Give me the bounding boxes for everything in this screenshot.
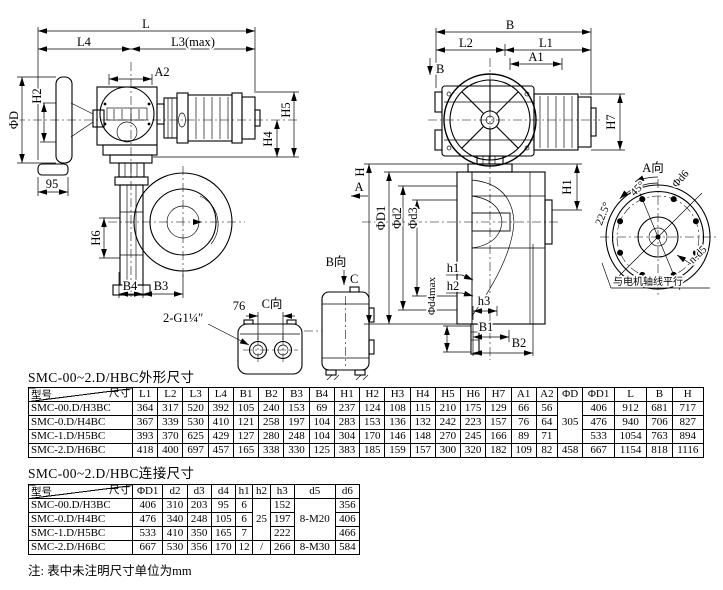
dim-cell: 305 bbox=[558, 402, 583, 444]
dim-cell: 356 bbox=[335, 499, 359, 513]
column-header: h3 bbox=[270, 485, 294, 499]
corner-header-cell: 型号 尺寸 bbox=[29, 388, 133, 402]
dim-cell: 157 bbox=[410, 444, 435, 458]
column-header: B bbox=[647, 388, 672, 402]
dim-cell: 706 bbox=[647, 416, 672, 430]
table-row: SMC-0.D/H4BC3673395304101212581971042831… bbox=[29, 416, 704, 430]
dim-cell: 406 bbox=[583, 402, 615, 416]
dim-cell: 105 bbox=[233, 402, 258, 416]
table-row: SMC-2.D/H6BC66753035617012/2668-M30584 bbox=[29, 541, 360, 555]
dim-cell: 125 bbox=[309, 444, 334, 458]
dim-cell: 64 bbox=[536, 416, 557, 430]
view-b-junction-box: B向 C bbox=[304, 254, 374, 380]
dim-cell: 108 bbox=[385, 402, 410, 416]
dim-cell: 406 bbox=[133, 499, 163, 513]
column-header: h1 bbox=[235, 485, 252, 499]
dim-cell: 109 bbox=[511, 444, 536, 458]
dim-cell: 25 bbox=[253, 499, 270, 541]
dim-cell: 157 bbox=[486, 416, 511, 430]
table2-title: SMC-00~2.D/HBC连接尺寸 bbox=[28, 462, 704, 482]
dim-cell: 159 bbox=[385, 444, 410, 458]
model-cell: SMC-1.D/H5BC bbox=[29, 527, 133, 541]
view-c-terminal-box: 76 C向 bbox=[233, 296, 302, 374]
dim-cell: 182 bbox=[486, 444, 511, 458]
header-row: 型号 尺寸 L1L2L3L4B1B2B3B4H1H2H3H4H5H6H7A1A2… bbox=[29, 388, 704, 402]
column-header: L1 bbox=[133, 388, 158, 402]
dim-label-b4: B4 bbox=[123, 279, 138, 293]
dim-cell: 197 bbox=[270, 513, 294, 527]
dim-cell: 356 bbox=[187, 541, 211, 555]
dim-label-phid: ΦD bbox=[7, 111, 21, 129]
dim-cell: 625 bbox=[183, 430, 208, 444]
dim-cell: 300 bbox=[435, 444, 460, 458]
dim-label-h6: H6 bbox=[89, 230, 103, 245]
corner-model-label: 型号 bbox=[31, 389, 52, 402]
dim-cell: 66 bbox=[511, 402, 536, 416]
dim-cell: 170 bbox=[360, 430, 385, 444]
dim-label-phid1: ΦD1 bbox=[374, 206, 388, 230]
dim-cell: 8-M30 bbox=[294, 541, 335, 555]
dim-cell: 584 bbox=[335, 541, 359, 555]
column-header: d5 bbox=[294, 485, 335, 499]
dim-cell: 266 bbox=[270, 541, 294, 555]
dim-cell: 270 bbox=[435, 430, 460, 444]
dim-label-l4: L4 bbox=[77, 35, 92, 49]
column-header: h2 bbox=[253, 485, 270, 499]
dim-cell: 258 bbox=[259, 416, 284, 430]
dim-cell: 222 bbox=[270, 527, 294, 541]
dim-label-l3max: L3(max) bbox=[171, 35, 215, 49]
view-a-direction-label: A bbox=[354, 180, 363, 194]
dim-cell: 818 bbox=[647, 444, 672, 458]
dim-cell: 418 bbox=[133, 444, 158, 458]
column-header: H6 bbox=[461, 388, 486, 402]
dim-label-l1: L1 bbox=[539, 36, 553, 50]
dim-cell: 429 bbox=[208, 430, 233, 444]
dim-cell: 248 bbox=[187, 513, 211, 527]
column-header: L3 bbox=[183, 388, 208, 402]
table-row: SMC-00.D/H3BC406310203956251528-M20356 bbox=[29, 499, 360, 513]
corner-size-label: 尺寸 bbox=[109, 484, 130, 497]
model-cell: SMC-1.D/H5BC bbox=[29, 430, 133, 444]
dim-cell: 340 bbox=[163, 513, 187, 527]
dim-cell: 121 bbox=[233, 416, 258, 430]
column-header: H1 bbox=[334, 388, 359, 402]
dim-label-b3: B3 bbox=[154, 279, 169, 293]
column-header: H3 bbox=[385, 388, 410, 402]
dim-label-h2-small: h2 bbox=[447, 279, 460, 293]
unit-note: 注: 表中未注明尺寸单位为mm bbox=[28, 560, 704, 579]
dim-cell: 530 bbox=[163, 541, 187, 555]
dim-label-h1: H1 bbox=[560, 179, 574, 194]
front-view-dimensions: B L2 L1 A1 B H7 H1 H A bbox=[351, 18, 625, 356]
model-cell: SMC-00.D/H3BC bbox=[29, 402, 133, 416]
motor-side bbox=[164, 93, 260, 143]
corner-model-label: 型号 bbox=[31, 486, 52, 499]
dim-cell: 115 bbox=[410, 402, 435, 416]
dim-cell: / bbox=[253, 541, 270, 555]
dim-cell: 245 bbox=[461, 430, 486, 444]
view-b-direction-label: B bbox=[436, 62, 444, 76]
dim-cell: 124 bbox=[360, 402, 385, 416]
dim-cell: 89 bbox=[511, 430, 536, 444]
dim-cell: 69 bbox=[309, 402, 334, 416]
dim-cell: 1116 bbox=[672, 444, 703, 458]
dim-cell: 350 bbox=[187, 527, 211, 541]
corner-size-label: 尺寸 bbox=[109, 387, 130, 400]
dim-label-l2: L2 bbox=[459, 36, 473, 50]
dim-cell: 304 bbox=[334, 430, 359, 444]
dim-cell: 717 bbox=[672, 402, 703, 416]
dim-cell: 175 bbox=[461, 402, 486, 416]
dim-cell: 912 bbox=[614, 402, 646, 416]
dim-cell: 827 bbox=[672, 416, 703, 430]
dim-cell: 280 bbox=[259, 430, 284, 444]
dim-cell: 392 bbox=[208, 402, 233, 416]
dim-label-l: L bbox=[142, 17, 150, 31]
dim-label-phid4max: Φd4max bbox=[426, 277, 438, 315]
model-cell: SMC-0.D/H4BC bbox=[29, 513, 133, 527]
dim-cell: 338 bbox=[259, 444, 284, 458]
outline-dimensions-table: 型号 尺寸 L1L2L3L4B1B2B3B4H1H2H3H4H5H6H7A1A2… bbox=[28, 387, 704, 458]
dim-label-nd5: n-d5 bbox=[686, 243, 709, 266]
dim-cell: 283 bbox=[334, 416, 359, 430]
dim-cell: 132 bbox=[410, 416, 435, 430]
dim-cell: 71 bbox=[536, 430, 557, 444]
column-header: ΦD1 bbox=[133, 485, 163, 499]
dim-cell: 56 bbox=[536, 402, 557, 416]
dim-cell: 127 bbox=[233, 430, 258, 444]
column-header: d6 bbox=[335, 485, 359, 499]
dim-label-a1: A1 bbox=[528, 50, 543, 64]
dim-cell: 105 bbox=[211, 513, 235, 527]
dim-cell: 667 bbox=[583, 444, 615, 458]
dim-cell: 12 bbox=[235, 541, 252, 555]
column-header: d3 bbox=[187, 485, 211, 499]
column-header: H2 bbox=[360, 388, 385, 402]
front-view-drawing: B L2 L1 A1 B H7 H1 H A bbox=[351, 18, 625, 360]
dim-cell: 320 bbox=[461, 444, 486, 458]
dim-cell: 940 bbox=[614, 416, 646, 430]
column-header: A1 bbox=[511, 388, 536, 402]
table-row: SMC-00.D/H3BC364317520392105240153692371… bbox=[29, 402, 704, 416]
dim-label-phid6: Φd6 bbox=[670, 168, 692, 191]
gearbox-housing bbox=[97, 87, 164, 145]
dim-cell: 370 bbox=[158, 430, 183, 444]
column-header: L4 bbox=[208, 388, 233, 402]
thread-spec-label: 2-G1¼″ bbox=[163, 311, 203, 325]
column-header: d2 bbox=[163, 485, 187, 499]
dim-label-95: 95 bbox=[46, 177, 59, 191]
dim-cell: 410 bbox=[163, 527, 187, 541]
dim-cell: 104 bbox=[309, 430, 334, 444]
dim-cell: 203 bbox=[187, 499, 211, 513]
dim-label-h5: H5 bbox=[279, 102, 293, 117]
handwheel-side bbox=[38, 77, 104, 175]
dim-cell: 367 bbox=[133, 416, 158, 430]
dim-cell: 165 bbox=[233, 444, 258, 458]
view-c-title: C向 bbox=[262, 296, 283, 311]
column-header: B3 bbox=[284, 388, 309, 402]
dim-label-h4: H4 bbox=[261, 131, 275, 147]
column-header: d4 bbox=[211, 485, 235, 499]
motor-front bbox=[534, 94, 596, 150]
dim-label-b2: B2 bbox=[512, 336, 527, 350]
dim-cell: 339 bbox=[158, 416, 183, 430]
column-header: L bbox=[614, 388, 646, 402]
dim-cell: 410 bbox=[208, 416, 233, 430]
dim-cell: 129 bbox=[486, 402, 511, 416]
dim-cell: 530 bbox=[183, 416, 208, 430]
connection-dimensions-table: 型号 尺寸 ΦD1d2d3d4h1h2h3d5d6 SMC-00.D/H3BC4… bbox=[28, 484, 360, 555]
dim-cell: 104 bbox=[309, 416, 334, 430]
table1-title: SMC-00~2.D/HBC外形尺寸 bbox=[28, 366, 704, 386]
dim-cell: 533 bbox=[583, 430, 615, 444]
dim-label-h: H bbox=[353, 167, 367, 176]
side-view-dimensions: L L4 L3(max) A2 H5 H4 ΦD H2 bbox=[7, 17, 299, 345]
dim-cell: 153 bbox=[284, 402, 309, 416]
valve-body-front bbox=[457, 156, 552, 354]
dim-cell: 364 bbox=[133, 402, 158, 416]
dim-cell: 476 bbox=[133, 513, 163, 527]
dim-cell: 136 bbox=[385, 416, 410, 430]
model-cell: SMC-00.D/H3BC bbox=[29, 499, 133, 513]
column-header: H5 bbox=[435, 388, 460, 402]
dim-cell: 170 bbox=[211, 541, 235, 555]
dim-cell: 8-M20 bbox=[294, 499, 335, 541]
dim-cell: 242 bbox=[435, 416, 460, 430]
column-header: ΦD bbox=[558, 388, 583, 402]
dim-cell: 393 bbox=[133, 430, 158, 444]
column-header: ΦD1 bbox=[583, 388, 615, 402]
side-view-drawing: L L4 L3(max) A2 H5 H4 ΦD H2 bbox=[7, 17, 300, 345]
corner-header-cell: 型号 尺寸 bbox=[29, 485, 133, 499]
dim-cell: 400 bbox=[158, 444, 183, 458]
view-a-flange: A向 Φd6 45° 22.5° n-d5 与电机轴线平行 bbox=[593, 160, 716, 295]
dim-cell: 166 bbox=[486, 430, 511, 444]
dim-cell: 330 bbox=[284, 444, 309, 458]
dim-label-phid2: Φd2 bbox=[390, 207, 404, 229]
column-header: L2 bbox=[158, 388, 183, 402]
dim-label-b1: B1 bbox=[479, 320, 494, 334]
dim-label-76: 76 bbox=[233, 299, 246, 313]
dim-cell: 894 bbox=[672, 430, 703, 444]
view-b-arrow-label: C bbox=[350, 272, 358, 286]
dim-label-h7: H7 bbox=[604, 114, 618, 129]
model-cell: SMC-2.D/H6BC bbox=[29, 444, 133, 458]
dim-cell: 6 bbox=[235, 499, 252, 513]
motor-axis-note: 与电机轴线平行 bbox=[613, 275, 683, 288]
column-header: B2 bbox=[259, 388, 284, 402]
dim-cell: 6 bbox=[235, 513, 252, 527]
dim-cell: 667 bbox=[133, 541, 163, 555]
dim-cell: 153 bbox=[360, 416, 385, 430]
model-cell: SMC-0.D/H4BC bbox=[29, 416, 133, 430]
dim-cell: 248 bbox=[284, 430, 309, 444]
dim-cell: 165 bbox=[211, 527, 235, 541]
table-row: SMC-2.D/H6BC4184006974571653383301253831… bbox=[29, 444, 704, 458]
dim-cell: 457 bbox=[208, 444, 233, 458]
dim-label-h2: H2 bbox=[30, 88, 44, 103]
dim-cell: 476 bbox=[583, 416, 615, 430]
dim-cell: 533 bbox=[133, 527, 163, 541]
dim-cell: 520 bbox=[183, 402, 208, 416]
dim-cell: 383 bbox=[334, 444, 359, 458]
dim-cell: 237 bbox=[334, 402, 359, 416]
dim-cell: 240 bbox=[259, 402, 284, 416]
dim-label-b: B bbox=[506, 18, 514, 32]
dim-cell: 223 bbox=[461, 416, 486, 430]
view-b-title: B向 bbox=[326, 254, 347, 269]
dim-cell: 763 bbox=[647, 430, 672, 444]
dim-label-h1-small: h1 bbox=[447, 261, 460, 275]
dim-label-a2: A2 bbox=[154, 65, 169, 79]
dim-cell: 681 bbox=[647, 402, 672, 416]
dim-cell: 210 bbox=[435, 402, 460, 416]
dim-cell: 146 bbox=[385, 430, 410, 444]
dim-label-45deg: 45° bbox=[628, 179, 647, 198]
column-header: A2 bbox=[536, 388, 557, 402]
dim-cell: 458 bbox=[558, 444, 583, 458]
dim-label-h3-small: h3 bbox=[478, 294, 491, 308]
dim-cell: 310 bbox=[163, 499, 187, 513]
dim-cell: 1054 bbox=[614, 430, 646, 444]
header-row: 型号 尺寸 ΦD1d2d3d4h1h2h3d5d6 bbox=[29, 485, 360, 499]
model-cell: SMC-2.D/H6BC bbox=[29, 541, 133, 555]
dim-cell: 466 bbox=[335, 527, 359, 541]
dim-label-225deg: 22.5° bbox=[593, 201, 613, 227]
table-row: SMC-1.D/H5BC3933706254291272802481043041… bbox=[29, 430, 704, 444]
column-header: H7 bbox=[486, 388, 511, 402]
dim-cell: 7 bbox=[235, 527, 252, 541]
dim-cell: 185 bbox=[360, 444, 385, 458]
dim-cell: 152 bbox=[270, 499, 294, 513]
dim-cell: 76 bbox=[511, 416, 536, 430]
dim-label-phid3: Φd3 bbox=[406, 207, 420, 229]
dim-cell: 95 bbox=[211, 499, 235, 513]
view-a-title: A向 bbox=[642, 160, 664, 175]
dim-cell: 1154 bbox=[614, 444, 646, 458]
dim-cell: 406 bbox=[335, 513, 359, 527]
column-header: B4 bbox=[309, 388, 334, 402]
dim-cell: 317 bbox=[158, 402, 183, 416]
valve-body-side bbox=[103, 145, 232, 295]
column-header: H4 bbox=[410, 388, 435, 402]
dimension-tables: SMC-00~2.D/HBC外形尺寸 型号 尺寸 L1L2L3L4B1B2B3B… bbox=[28, 366, 704, 579]
engineering-drawing-page: { "drawing_left": { "labels": { "L": "L"… bbox=[0, 0, 723, 590]
column-header: H bbox=[672, 388, 703, 402]
dim-cell: 197 bbox=[284, 416, 309, 430]
dim-cell: 697 bbox=[183, 444, 208, 458]
dim-cell: 148 bbox=[410, 430, 435, 444]
column-header: B1 bbox=[233, 388, 258, 402]
dim-cell: 82 bbox=[536, 444, 557, 458]
